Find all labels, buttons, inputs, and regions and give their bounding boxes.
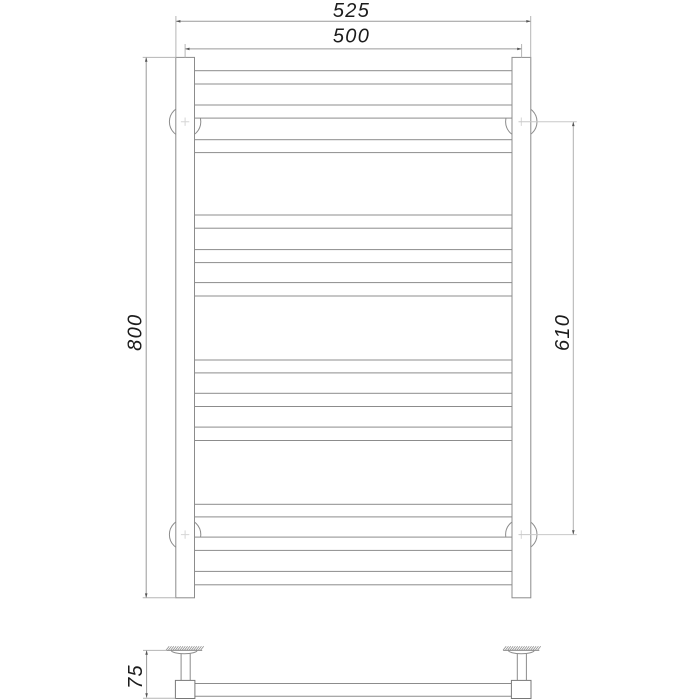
svg-text:75: 75: [125, 664, 147, 689]
svg-text:525: 525: [333, 0, 370, 22]
svg-text:610: 610: [552, 314, 574, 351]
svg-text:500: 500: [333, 26, 370, 48]
svg-text:800: 800: [124, 314, 146, 351]
